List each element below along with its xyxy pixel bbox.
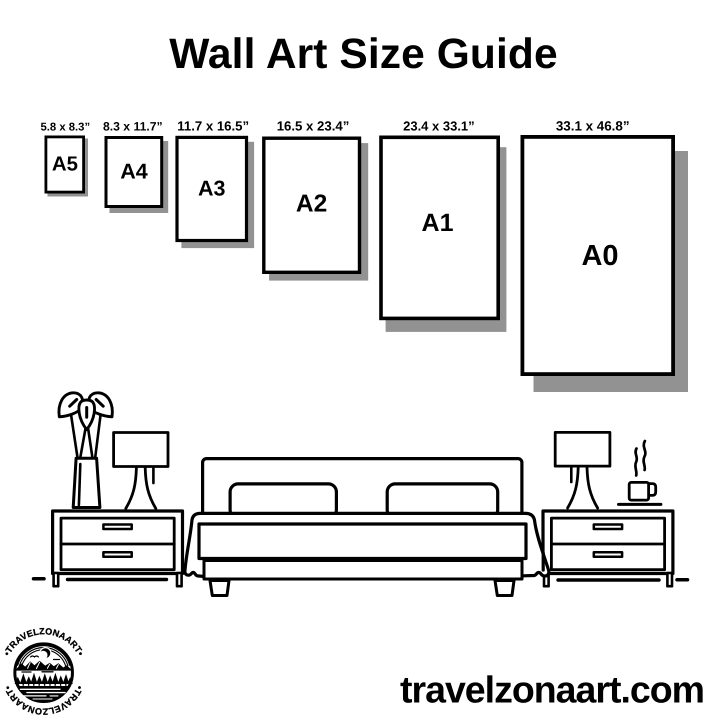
svg-text:A3: A3 — [198, 177, 226, 201]
svg-text:A1: A1 — [422, 209, 454, 237]
svg-text:5.8 x 8.3”: 5.8 x 8.3” — [40, 121, 90, 133]
svg-text:23.4 x 33.1”: 23.4 x 33.1” — [403, 118, 475, 133]
svg-text:11.7 x 16.5”: 11.7 x 16.5” — [177, 118, 249, 133]
svg-text:33.1 x 46.8”: 33.1 x 46.8” — [556, 118, 630, 133]
svg-text:16.5 x 23.4”: 16.5 x 23.4” — [277, 118, 350, 133]
svg-text:A2: A2 — [296, 191, 327, 218]
svg-text:A0: A0 — [581, 240, 618, 272]
svg-text:A5: A5 — [52, 153, 78, 175]
svg-text:A4: A4 — [120, 160, 148, 184]
svg-text:Wall Art Size Guide: Wall Art Size Guide — [169, 31, 557, 78]
svg-text:travelzonaart.com: travelzonaart.com — [400, 668, 704, 710]
svg-text:8.3 x 11.7”: 8.3 x 11.7” — [103, 119, 163, 133]
